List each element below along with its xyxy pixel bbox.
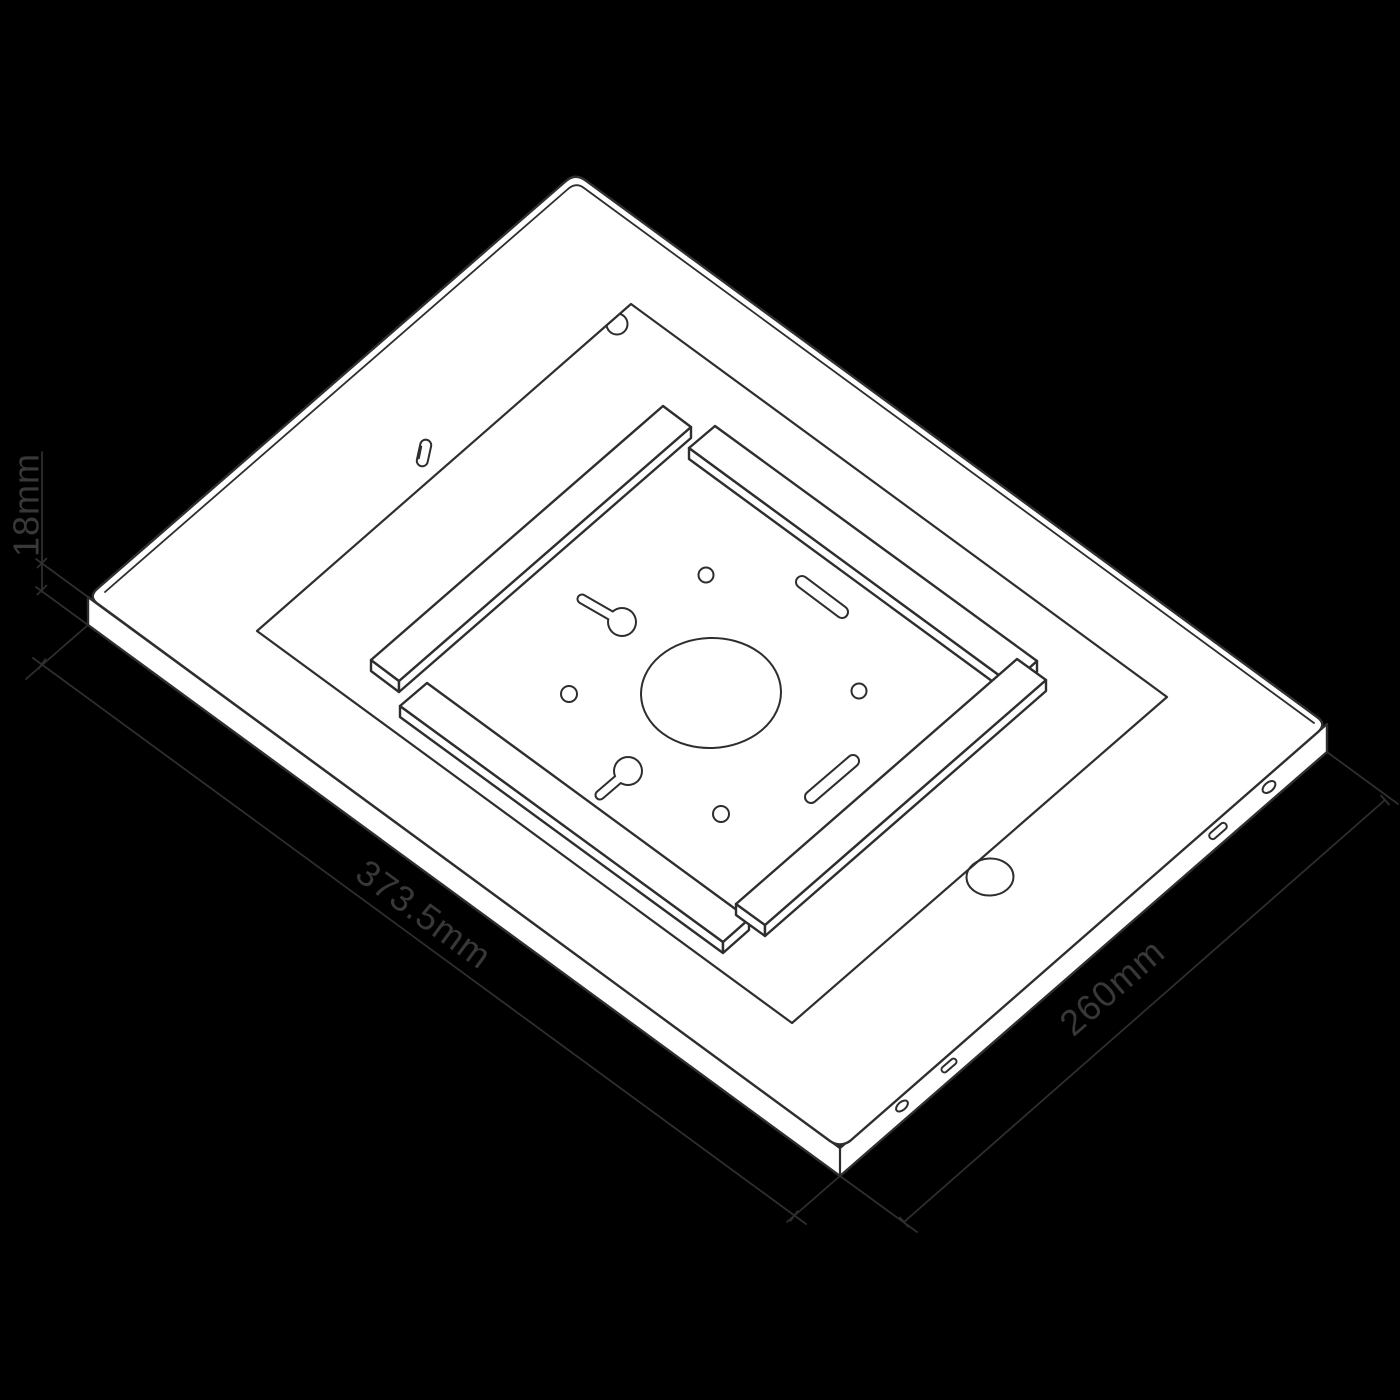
extension-line	[1327, 752, 1398, 804]
isometric-technical-drawing: 18mm 373.5mm 260mm	[0, 0, 1400, 1400]
extension-line	[36, 587, 88, 625]
security-slot-inner	[422, 445, 425, 461]
screw-hole-left	[561, 686, 577, 702]
screw-hole-top	[699, 568, 714, 583]
thickness-label: 18mm	[6, 453, 47, 557]
extension-line	[26, 625, 88, 679]
extension-line	[36, 559, 88, 597]
canvas: 18mm 373.5mm 260mm	[0, 0, 1400, 1400]
dimension-thickness: 18mm	[6, 452, 89, 625]
security-screw-slot	[419, 445, 426, 461]
home-button-hole	[966, 858, 1014, 897]
screw-hole-right	[852, 684, 867, 699]
screw-hole-bottom	[713, 806, 729, 822]
